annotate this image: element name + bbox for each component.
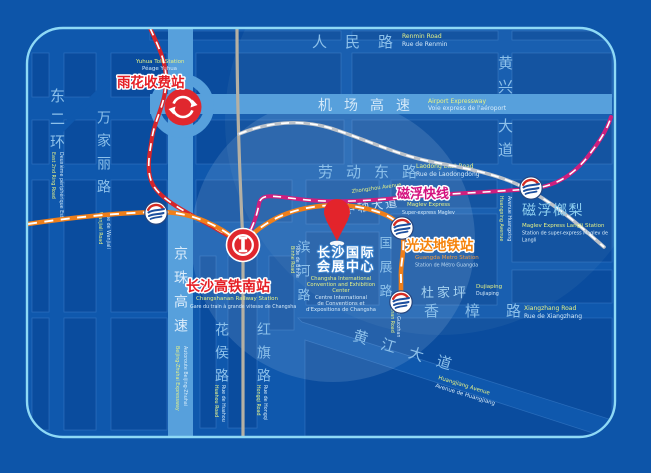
road-label-wanjiali-fr: Rue de Wanjiali [105, 212, 111, 249]
railway-south-label-en: Changshanan Railway Station [196, 296, 279, 302]
convention-center-label-en-line3: Center [332, 288, 350, 294]
metro-station-icon-west [145, 202, 167, 224]
road-label-huangxing-zh-bottom: 大道 [496, 118, 514, 166]
railway-south-label-zh: 长沙高铁南站 [186, 278, 270, 295]
convention-center-label-fr-line3: d'Expositions de Changsha [306, 307, 376, 313]
road-label-huahou-en: Huahou Road [213, 385, 219, 417]
road-label-renmin-zh: 人民路 [312, 33, 411, 51]
dujiaping-label-en: Dujiaping [476, 284, 502, 290]
road-label-wanjiali-zh: 万家丽路 [95, 110, 111, 202]
dujiaping-label-zh: 杜家坪 [421, 285, 469, 301]
road-label-hongqi-en: Hongqi Road [255, 385, 261, 416]
yuhua-toll-label-fr: Péage Yuhua [142, 65, 177, 72]
toll-roundabout-icon [165, 89, 202, 126]
road-label-airport-fr: Voie express de l'aéroport [428, 105, 507, 112]
guangda-label-zh: 光达地铁站 [405, 237, 474, 254]
road-label-hongqi-fr: Rue de Hongqi [262, 385, 268, 420]
convention-center-label-zh-line1: 长沙国际 [317, 245, 375, 261]
road-label-huahou-zh: 花侯路 [213, 322, 229, 391]
road-label-xiangzhang-fr: Rue de Xiangzhang [524, 313, 582, 320]
changsha-location-map: 人民路 Renmin Road Rue de Renmin 机场高速 Airpo… [0, 0, 651, 473]
maglev-express-label-fr: Super-express Maglev [402, 210, 455, 216]
guangda-label-fr: Station de Métro Guangda [415, 262, 478, 269]
road-label-xiangzhang-en: Xiangzhang Road [524, 305, 576, 312]
metro-station-icon-langli [520, 177, 542, 199]
road-label-dongerhuan-fr: Deuxième périphérique Est [58, 152, 65, 218]
langli-label-fr-line2: Langli [522, 238, 536, 244]
railway-station-icon [227, 229, 260, 262]
map-canvas: 人民路 Renmin Road Rue de Renmin 机场高速 Airpo… [0, 0, 651, 473]
langli-label-zh: 磁浮榔梨 [522, 203, 584, 219]
road-label-huangxing-en: Huangxing Avenue [498, 196, 504, 241]
road-label-dongerhuan-en: East 2nd Ring Road [50, 152, 56, 199]
langli-label-fr-line1: Station de super-express Maglev de [522, 231, 608, 237]
road-label-jingzhu-fr: Autoroute Beijing-Zhuhai [182, 346, 188, 406]
maglev-express-label-en: Maglev Express [407, 202, 450, 208]
maglev-express-label-zh: 磁浮快线 [397, 186, 449, 202]
guangda-label-en: Guangda Metro Station [415, 255, 479, 261]
langli-label-en: Maglev Express Langli Station [522, 223, 605, 229]
yuhua-toll-label-en: Yuhua Toll Station [135, 59, 185, 65]
yuhua-toll-label-zh: 雨花收费站 [117, 74, 185, 91]
road-label-renmin-en: Renmin Road [402, 33, 442, 40]
railway-south-label-fr: Gare du train à grande vitesse de Changs… [190, 303, 296, 310]
road-label-airport-en: Airport Expressway [428, 98, 486, 105]
dujiaping-label-fr: Dujiaping [476, 291, 499, 297]
road-label-hongqi-zh: 红旗路 [255, 322, 271, 391]
road-label-huangxing-zh-top: 黄兴 [496, 55, 514, 103]
road-label-laodong-fr: Rue de Laodongdong [416, 171, 480, 178]
road-label-laodong-zh: 劳动东路 [318, 163, 430, 181]
road-label-huahou-fr: Rue de Huahou [220, 385, 226, 422]
road-label-airport-zh: 机场高速 [318, 97, 422, 114]
metro-station-icon-dujiaping [390, 291, 412, 313]
road-label-jingzhu-en: Beijing-Zhuhai Expressway [174, 346, 180, 411]
metro-station-icon-guangda [391, 217, 413, 239]
road-label-renmin-fr: Rue de Renmin [402, 41, 448, 48]
road-label-binhe-fr: Rue de Binhe [294, 246, 300, 278]
road-label-huangxing-fr: Avenue Huangxing [506, 196, 512, 241]
convention-center-label-zh-line2: 会展中心 [317, 259, 375, 275]
road-label-dongerhuan-zh: 东二环 [48, 88, 66, 157]
